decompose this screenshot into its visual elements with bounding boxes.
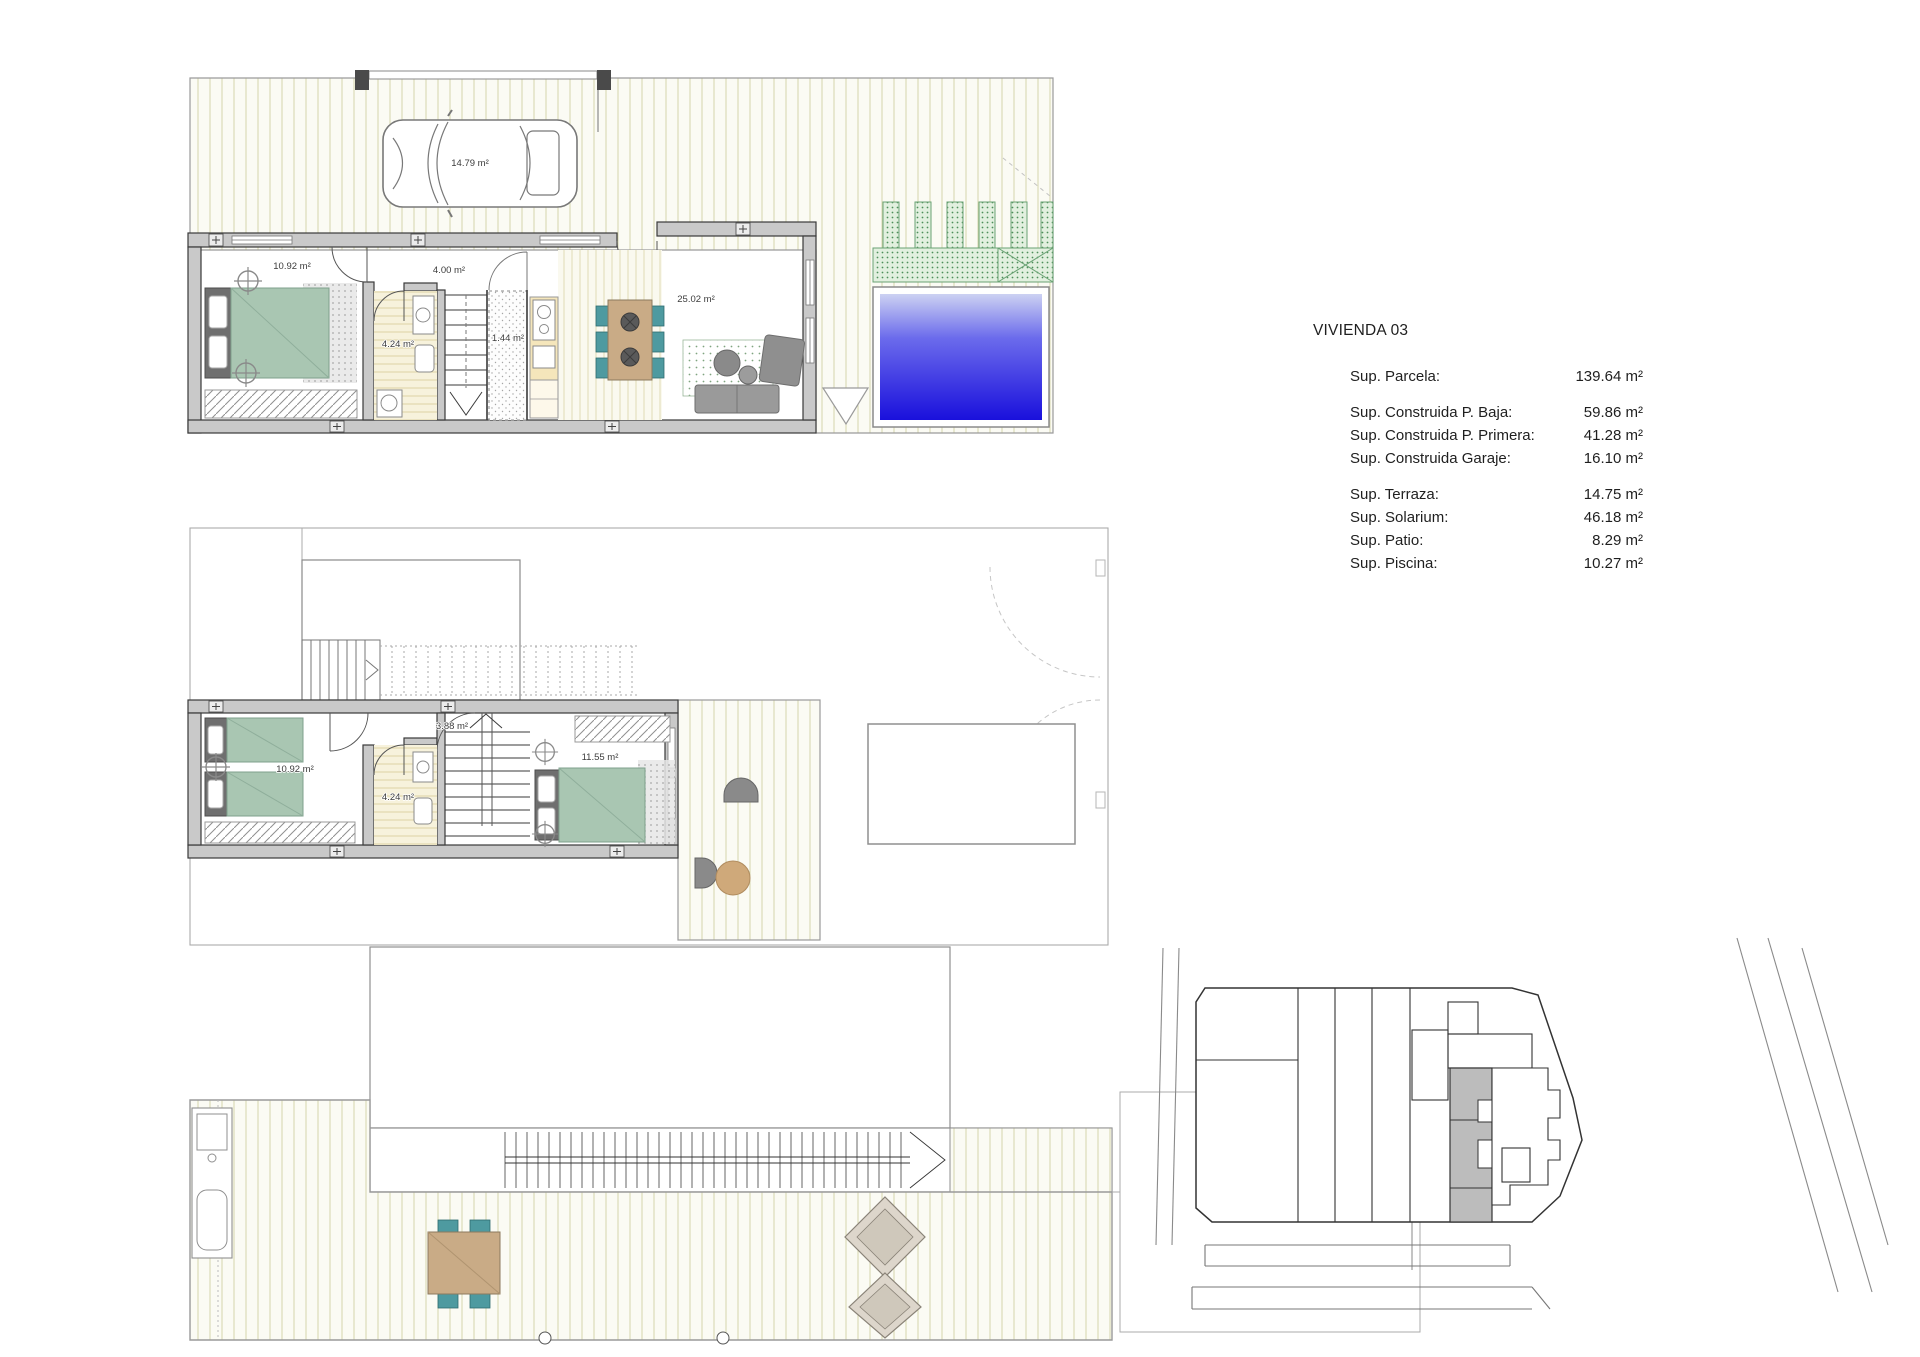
info-value: 14.75 m²	[1584, 483, 1643, 506]
info-row-piscina: Sup. Piscina: 10.27 m²	[1313, 552, 1643, 575]
first-bath-label: 4.24 m²	[382, 792, 414, 803]
garage-jamb-left	[355, 70, 369, 90]
stairwell-void	[302, 560, 520, 700]
bulkhead-deck	[950, 1128, 1112, 1192]
ground-wc-label: 1.44 m²	[492, 333, 524, 344]
roof-void	[370, 947, 950, 1128]
wardrobe	[205, 390, 357, 418]
ground-floor-plan: 14.79 m²	[188, 70, 1053, 433]
info-label: Sup. Construida P. Primera:	[1313, 424, 1535, 447]
vivienda-title: VIVIENDA 03	[1313, 322, 1643, 340]
pillow	[209, 336, 227, 368]
ground-parking-label: 14.79 m²	[451, 158, 489, 169]
ground-hall-label: 4.00 m²	[433, 265, 465, 276]
info-row-construida-baja: Sup. Construida P. Baja: 59.86 m²	[1313, 401, 1643, 424]
info-label: Sup. Solarium:	[1313, 506, 1448, 529]
info-value: 16.10 m²	[1584, 447, 1643, 470]
patio-outline	[868, 724, 1075, 844]
ground-stairs	[445, 295, 487, 415]
hinge-mark	[717, 1332, 729, 1344]
drawings-canvas: 14.79 m²	[0, 0, 1920, 1357]
round-table-icon	[716, 861, 750, 895]
hinge-mark	[539, 1332, 551, 1344]
single-bed-icon	[205, 772, 303, 816]
info-label: Sup. Parcela:	[1313, 365, 1440, 388]
ground-bath-label: 4.24 m²	[382, 339, 414, 350]
info-label: Sup. Construida Garaje:	[1313, 447, 1511, 470]
site-highlight-parcel	[1450, 1068, 1492, 1222]
first-bedroom-label: 10.92 m²	[276, 764, 314, 775]
info-row-terraza: Sup. Terraza: 14.75 m²	[1313, 483, 1643, 506]
first-master-label: 11.55 m²	[582, 752, 619, 763]
info-value: 10.27 m²	[1584, 552, 1643, 575]
pillow	[209, 296, 227, 328]
info-row-patio: Sup. Patio: 8.29 m²	[1313, 529, 1643, 552]
armchair-icon	[759, 334, 805, 386]
info-value: 8.29 m²	[1592, 529, 1643, 552]
info-row-construida-primera: Sup. Construida P. Primera: 41.28 m²	[1313, 424, 1643, 447]
single-bed-icon	[205, 718, 303, 762]
roof-kitchenette	[192, 1108, 232, 1258]
info-row-solarium: Sup. Solarium: 46.18 m²	[1313, 506, 1643, 529]
info-label: Sup. Piscina:	[1313, 552, 1438, 575]
garage-door	[369, 71, 597, 79]
info-label: Sup. Terraza:	[1313, 483, 1439, 506]
first-hall-label: 3.88 m²	[436, 721, 468, 732]
ground-bedroom	[205, 247, 367, 418]
ground-bathroom	[374, 291, 437, 420]
info-value: 59.86 m²	[1584, 401, 1643, 424]
site-sidewalks	[1192, 1245, 1550, 1309]
info-label: Sup. Construida P. Baja:	[1313, 401, 1512, 424]
ground-bedroom-label: 10.92 m²	[273, 261, 311, 272]
info-value: 41.28 m²	[1584, 424, 1643, 447]
wardrobe	[205, 822, 355, 843]
bulkhead-stairs	[505, 1132, 945, 1188]
info-panel: VIVIENDA 03 Sup. Parcela: 139.64 m² Sup.…	[1313, 322, 1643, 575]
info-row-parcela: Sup. Parcela: 139.64 m²	[1313, 365, 1643, 388]
first-floor-plan: 10.92 m² 3.88 m² 4.24 m² 11.55 m²	[188, 528, 1108, 945]
dining-set	[596, 300, 664, 380]
info-label: Sup. Patio:	[1313, 529, 1423, 552]
dining-table-icon	[608, 300, 652, 380]
living-room	[683, 334, 805, 413]
info-row-construida-garaje: Sup. Construida Garaje: 16.10 m²	[1313, 447, 1643, 470]
ground-living-label: 25.02 m²	[677, 294, 715, 305]
garage-jamb-right	[597, 70, 611, 90]
wardrobe	[575, 716, 670, 742]
info-value: 139.64 m²	[1575, 365, 1643, 388]
info-value: 46.18 m²	[1584, 506, 1643, 529]
pool	[873, 287, 1049, 427]
first-terrace-deck	[678, 700, 820, 940]
site-plan	[1156, 938, 1888, 1309]
plan-sheet: 14.79 m²	[0, 0, 1920, 1357]
